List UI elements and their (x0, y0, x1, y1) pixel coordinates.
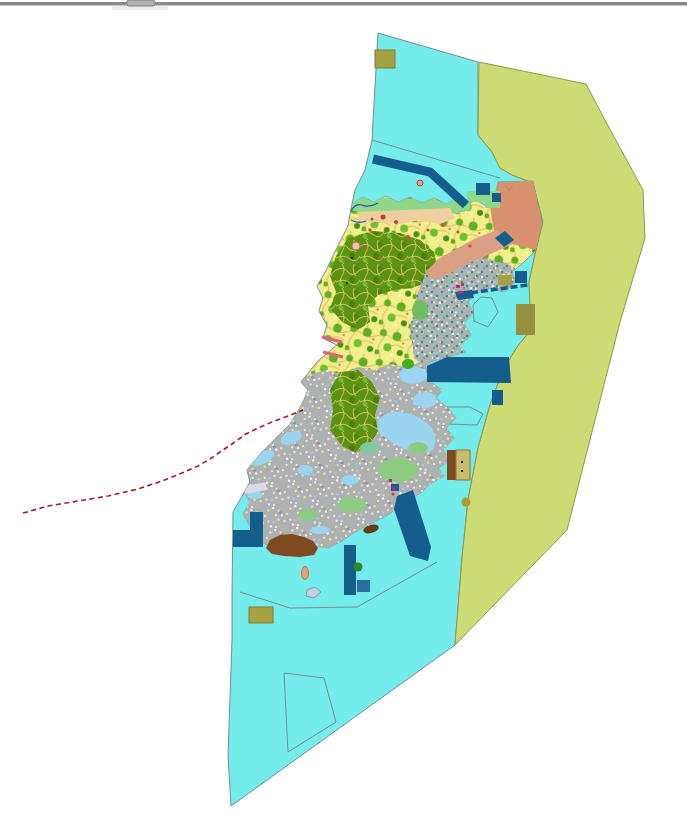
north-khaki-block (375, 50, 395, 68)
khaki-islet (462, 498, 471, 507)
water-patch (413, 392, 437, 408)
magenta-mark (389, 479, 392, 482)
sw-khaki-block (249, 607, 273, 623)
coast-ring-mark (352, 242, 360, 250)
village-spot (394, 220, 398, 224)
east-reclamation (427, 357, 511, 383)
green-islet (354, 563, 363, 572)
south-pier (344, 545, 356, 595)
east-brown-block (447, 450, 456, 480)
magenta-mark (458, 291, 463, 294)
offshore-block (357, 580, 370, 592)
navy-block (492, 193, 501, 202)
water-patch (297, 465, 313, 475)
red-mark (461, 283, 464, 286)
water-patch (341, 475, 359, 485)
navy-block (476, 183, 490, 195)
tan-block-mark (461, 461, 463, 463)
green-knoll (402, 359, 414, 369)
top-divider-bar (0, 2, 687, 5)
magenta-mark (456, 285, 460, 288)
salmon-islet (302, 567, 309, 580)
parkland (412, 300, 428, 320)
navy-block (515, 271, 527, 283)
black-dot (346, 282, 348, 284)
black-dot (351, 257, 353, 259)
grip-handle[interactable] (127, 0, 155, 6)
map-canvas[interactable] (0, 0, 687, 821)
ne-khaki-block (498, 275, 512, 285)
parkland (378, 458, 418, 482)
navy-block (492, 390, 503, 405)
top-divider-edge (0, 5, 687, 6)
village-spot (381, 215, 386, 220)
magenta-mark (392, 486, 395, 490)
parkland (408, 442, 428, 454)
parkland (338, 497, 366, 513)
tan-block-mark (461, 470, 463, 472)
water-patch (310, 526, 330, 534)
red-mark (392, 493, 395, 496)
village-spot (371, 218, 374, 221)
landuse-map (0, 0, 687, 821)
east-tan-block (456, 450, 470, 480)
parkland (360, 442, 380, 454)
salmon-spot (417, 180, 423, 186)
water-patch (399, 366, 427, 384)
southwest-pier-stem (250, 512, 263, 534)
east-dark-khaki-block (516, 304, 535, 335)
grip-shadow (112, 6, 168, 10)
parkland (298, 509, 318, 521)
